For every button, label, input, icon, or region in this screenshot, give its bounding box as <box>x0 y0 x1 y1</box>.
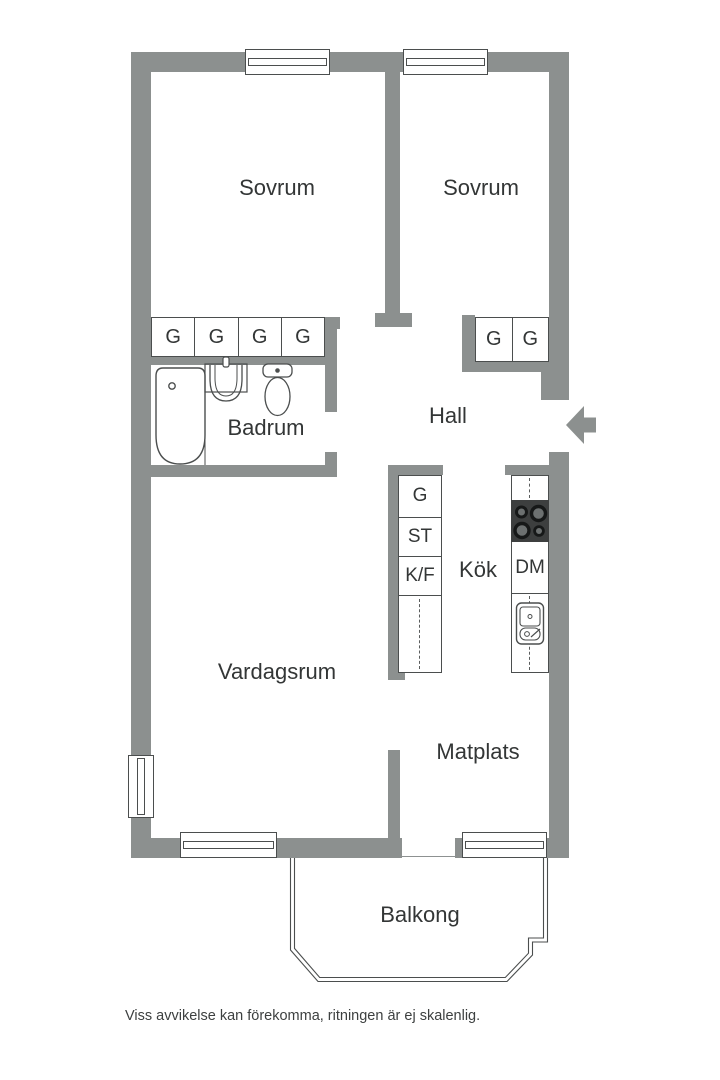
balcony-door-threshold <box>402 856 455 857</box>
wardrobe-label: G <box>209 326 225 349</box>
wall-left <box>131 52 151 858</box>
room-label-kitchen: Kök <box>459 557 497 583</box>
floorplan-canvas: G G G G G G G ST K/F DM Sovrum Sovrum Ba… <box>0 0 720 1080</box>
wall-entrance-jamb <box>541 372 553 400</box>
room-label-bathroom: Badrum <box>227 415 304 441</box>
wardrobe-cell: G <box>282 318 324 356</box>
closet-cell: G <box>398 475 442 517</box>
closet-label: G <box>413 485 428 507</box>
wall-kitchen-left-cap <box>388 673 405 680</box>
wall-bedroom-divider <box>385 72 400 317</box>
wall-under-bedroom1-wardrobes <box>151 357 325 365</box>
wall-under-bedroom2-wardrobes <box>462 362 549 372</box>
window-bedroom2 <box>403 49 488 75</box>
window-living-bottom <box>180 832 277 858</box>
wardrobe-cell: G <box>195 318 238 356</box>
dishwasher-label: DM <box>515 557 545 579</box>
room-label-bedroom1: Sovrum <box>239 175 315 201</box>
entrance-arrow-icon <box>566 406 596 444</box>
wardrobe-cell: G <box>476 318 513 361</box>
window-living-left <box>128 755 154 818</box>
wardrobe-row-bedroom2: G G <box>475 317 549 362</box>
wardrobe-cell: G <box>513 318 549 361</box>
wall-bathroom-door-jamb <box>325 452 337 465</box>
wall-top <box>131 52 569 72</box>
cleaning-closet-cell: ST <box>398 517 442 556</box>
wardrobe-cell: G <box>239 318 282 356</box>
wall-kitchen-right-top <box>505 465 549 475</box>
dishwasher-cell: DM <box>511 545 549 590</box>
balcony-door-opening <box>402 838 455 858</box>
wall-right-lower <box>549 452 569 858</box>
wall-bathroom-right-cap <box>325 317 340 329</box>
wall-bathroom-right <box>325 317 337 412</box>
wall-bedroom-divider-cap <box>375 313 412 327</box>
wardrobe-label: G <box>295 326 311 349</box>
wall-right-upper <box>549 52 569 400</box>
fixtures-layer <box>0 0 720 1080</box>
toilet-icon <box>263 364 292 416</box>
window-bedroom1 <box>245 49 330 75</box>
room-label-bedroom2: Sovrum <box>443 175 519 201</box>
window-dining-bottom <box>462 832 547 858</box>
wall-bathroom-bottom <box>131 465 337 477</box>
wardrobe-label: G <box>522 328 538 351</box>
counter-centerline <box>419 599 420 669</box>
bathtub-icon <box>156 366 205 465</box>
cabinet-divider-line <box>399 595 441 596</box>
wall-kitchen-left-top <box>388 465 443 475</box>
room-label-living: Vardagsrum <box>218 659 336 685</box>
room-label-hall: Hall <box>429 403 467 429</box>
counter-centerline <box>529 596 530 670</box>
wardrobe-label: G <box>165 326 181 349</box>
wardrobe-cell: G <box>152 318 195 356</box>
counter-centerline <box>529 478 530 498</box>
wall-kitchen-left-strip <box>388 475 398 673</box>
wall-dining-divider <box>388 750 400 838</box>
disclaimer-text: Viss avvikelse kan förekomma, ritningen … <box>125 1008 480 1024</box>
wardrobe-label: G <box>486 328 502 351</box>
wardrobe-label: G <box>252 326 268 349</box>
room-label-balcony: Balkong <box>380 902 460 928</box>
fridge-freezer-cell: K/F <box>398 556 442 595</box>
closet-label: ST <box>408 526 432 548</box>
closet-label: K/F <box>405 565 435 587</box>
room-label-dining: Matplats <box>436 739 519 765</box>
cabinet-divider-line <box>512 593 548 594</box>
wardrobe-row-bedroom1: G G G G <box>151 317 325 357</box>
